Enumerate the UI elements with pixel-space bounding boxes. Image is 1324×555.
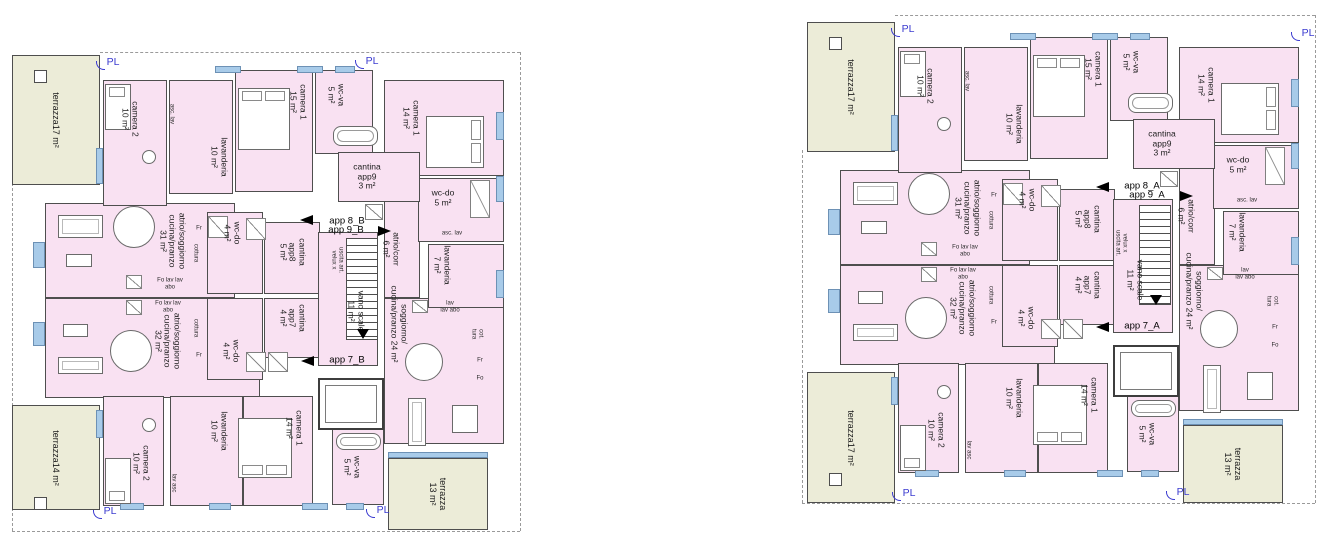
fixture-label-line: Fr [1272,325,1278,332]
bed-pillow [471,143,481,163]
fixture-crossed-box [470,180,490,218]
room-label-line: app9 [353,172,380,182]
bed-pillow [904,458,920,468]
room-label-line: 14 m² [401,100,411,135]
pl-marker-leader [355,60,364,69]
window [891,115,898,151]
table [1247,372,1273,400]
fixture-label-line: asc. lav [1237,198,1257,205]
fixture-label-line: lav asc [965,441,972,460]
room-label-line: 4 m² [1016,307,1026,330]
fixture-label: Fr [196,353,202,360]
room-label: lavanderia10 m² [209,411,228,450]
window [828,289,840,313]
terrace-label-line: terrazza [1233,448,1243,481]
fixture-label-line: cottura [192,244,199,262]
apartment-entrance-label: app 9_A [1129,191,1164,202]
pl-marker-label: PL [107,57,120,69]
room-label: lavanderia10 m² [1004,104,1023,143]
sofa [853,182,898,205]
room-label-line: cantina [1092,271,1102,298]
bed-pillow [904,54,920,64]
room-label-line: 6 m² [1176,199,1186,233]
room-label: wc-va5 m² [1137,422,1156,444]
pl-marker-label-line: PL [903,488,916,500]
dining-table [113,206,155,248]
window [96,410,103,438]
fixture-label: velux xuscita art. [1114,230,1127,256]
pl-marker-label-line: PL [377,505,390,517]
room-label-line: camera 2 [130,101,140,136]
pl-marker-leader [93,510,102,519]
window [1010,33,1036,40]
table [858,291,883,304]
bed-pillow [109,491,125,501]
window [96,148,103,184]
room-label-line: 14 m² [1079,377,1089,412]
room-label: soggiorno/cucina/pranzo 24 m² [389,285,408,362]
fixture-label-line: abo [157,284,183,291]
room-label-line: 4 m² [278,304,288,331]
room-label-line: wc-do [1027,189,1037,212]
room-label-line: 10 m² [209,137,219,176]
sofa [58,357,103,374]
property-boundary-line [895,15,1315,16]
fixture-crossed-box [268,352,288,372]
window [1291,237,1299,265]
fixture-label-line: lav abo [1235,274,1254,281]
room-label-line: 7 m² [1227,212,1237,251]
fixture-label-line: abo [952,251,978,258]
room-label: atrio/corr6 m² [1176,199,1195,233]
pl-marker-label-line: PL [1302,28,1315,40]
fixture-crossed-box [1265,147,1285,185]
room-label: cantinaapp74 m² [1073,271,1102,298]
fixture-label: Fo [476,376,483,383]
sofa [853,324,898,341]
room-label: wc-va5 m² [342,455,361,477]
room [965,363,1038,473]
fixture-label: Fr [477,358,483,365]
room-label-line: soggiorno/ [1194,252,1204,329]
bathtub-basin [337,130,374,142]
room-label: soggiorno/cucina/pranzo 24 m² [1184,252,1203,329]
bed [105,458,131,504]
room-label: camera 114 m² [1196,67,1215,102]
fixture-label: Fr [196,226,202,233]
apartment-entrance-arrow [301,356,314,366]
fixture-label-line: cottura [987,286,994,304]
room-label-line: 5 m² [1137,422,1147,444]
table [452,405,478,433]
room-label-line: 11 m² [346,291,356,332]
room-label-line: camera 2 [141,445,151,480]
window [1004,470,1026,477]
terrace-planter [829,473,842,486]
fixture-crossed-box [921,267,937,282]
apartment-entrance-label-line: app 9_B [328,226,363,237]
bed-pillow [242,91,262,101]
fixture-label: lavlav abo [440,300,459,313]
room-label-line: 5 m² [1227,165,1250,175]
pl-marker-label: PL [1177,487,1190,499]
bathtub [1128,93,1173,113]
room-label-line: cantina [297,238,307,265]
window [1097,470,1123,477]
window [209,503,231,510]
fixture-label-line: Fo lav lav [155,300,181,307]
room-label-line: wc-do [232,222,242,245]
room-label-line: vano scale [1135,260,1145,301]
room-label: vano scale11 m² [1125,260,1144,301]
fixture-label: cottura [192,319,199,337]
pl-marker-label-line: PL [902,24,915,36]
room-label-line: 14 m² [1196,67,1206,102]
window [215,66,241,73]
fixture-crossed-box [126,275,142,289]
window [33,322,45,346]
bed-pillow [1266,87,1276,107]
apartment-entrance-arrow [1096,182,1109,192]
fixture-label: asc. lav [442,231,462,238]
room-label-line: vano scale [356,291,366,332]
dining-table [1200,310,1238,348]
room-label-line: wc-do [231,340,241,363]
room-label: camera 210 m² [926,412,945,447]
room-label-line: lavanderia [1014,104,1024,143]
room-label: camera 114 m² [1079,377,1098,412]
window [1092,33,1118,40]
bathtub-basin [340,437,377,446]
table [63,324,88,337]
fixture-label: cottura [987,286,994,304]
property-boundary-line [12,531,520,532]
stair-direction-arrow [1150,295,1162,305]
apartment-entrance-label-line: app 7_B [329,356,364,367]
elevator-car [1120,352,1172,390]
room-label: wc-do4 m² [222,222,241,245]
apartment-entrance-label: app 7_A [1124,322,1159,333]
window [335,66,355,73]
room-label-line: app7 [287,304,297,331]
fixture-label-line: asc. lav [168,104,175,124]
desk-chair [142,418,156,432]
dining-table [405,343,443,381]
fixture-label: Fo [1271,343,1278,350]
room-label-line: app8 [287,238,297,265]
room-label-line: camera 2 [936,412,946,447]
room-label: wc-do5 m² [1227,155,1250,174]
window [1291,79,1299,107]
room-label-line: cucina/pranzo [962,179,972,235]
apartment-entrance-arrow [1180,191,1193,201]
fixture-label: Fo lav lavabo [950,267,976,280]
fixture-label-line: cottura [987,211,994,229]
room-label-line: 4 m² [1017,189,1027,212]
room-label-line: 10 m² [209,411,219,450]
room-label-line: cucina/pranzo 24 m² [389,285,399,362]
room-label-line: 10 m² [1004,104,1014,143]
bathtub [336,433,381,450]
room-label-line: camera 1 [1089,377,1099,412]
apartment-entrance-arrow [300,215,313,225]
room-label-line: 5 m² [1073,205,1083,232]
room-label-line: 4 m² [1073,271,1083,298]
bed-pillow [471,120,481,140]
room-label-line: cantina [1092,205,1102,232]
fixture-label-line: velux x [1121,230,1128,256]
room-label: atrio/soggiornocucina/pranzo31 m² [953,179,982,235]
pl-marker-label: PL [104,506,117,518]
bathtub-basin [1132,97,1169,109]
window [891,377,898,405]
fixture-label-line: Fr [991,320,997,327]
fixture-crossed-box [1041,319,1061,339]
apartment-entrance-label: app 7_B [329,356,364,367]
terrace-label: terrazza17 m² [51,92,61,148]
fixture-label-line: Fo lav lav [952,244,978,251]
room-label-line: lavanderia [219,137,229,176]
room-label-line: cucina/pranzo [162,313,172,369]
fixture-label: asc. lav [963,71,970,91]
room-label-line: wc-va [336,84,346,106]
terrace-label: terrazza13 m² [1223,448,1243,481]
terrace-label-line: terrazza14 m² [51,430,61,486]
bathtub [333,126,378,146]
apartment-entrance-label: app 9_B [328,226,363,237]
window [1130,33,1150,40]
bed [1221,83,1279,135]
window [120,503,144,510]
room-label-line: atrio/soggiorno [171,313,181,369]
fixture-crossed-box [1160,171,1178,187]
room-label-line: cucina/pranzo 24 m² [1184,252,1194,329]
room-label-line: app9 [1148,139,1175,149]
fixture-crossed-box [365,204,383,220]
bed [1033,55,1085,117]
fixture-crossed-box [1063,319,1083,339]
terrace-planter [34,497,47,510]
window [33,242,45,268]
fixture-label-line: asc. lav [442,231,462,238]
room-label-line: camera 1 [1206,67,1216,102]
room-label: lavanderia10 m² [1004,378,1023,417]
room-label-line: cantina [1148,130,1175,140]
room-label-line: atrio/soggiorno [177,212,187,268]
room-label: wc-do4 m² [221,340,240,363]
room [170,396,243,506]
terrace-label-line: terrazza17 m² [846,410,856,466]
pl-marker-label: PL [366,56,379,68]
desk-chair [937,117,951,131]
dining-table [908,173,950,215]
room-label-line: 11 m² [1125,260,1135,301]
room-label: wc-do4 m² [1016,307,1035,330]
bed-pillow [1266,110,1276,130]
room-label-line: 5 m² [432,198,455,208]
fixture-label-line: Fo lav lav [157,277,183,284]
terrace-label-line: terrazza17 m² [51,92,61,148]
room-label-line: 10 m² [120,101,130,136]
room-label-line: 32 m² [152,313,162,369]
window [1141,470,1159,477]
room-label: atrio/corr6 m² [381,232,400,266]
room-label-line: app8 [1082,205,1092,232]
window [1183,419,1283,425]
fixture-label-line: Fr [196,226,202,233]
room-label-line: cucina/pranzo [957,280,967,336]
room-label-line: 4 m² [222,222,232,245]
fixture-label: lav asc [965,441,972,460]
pl-marker-leader [1166,491,1175,500]
pl-marker-label-line: PL [104,506,117,518]
fixture-label-line: abo [950,274,976,281]
fixture-label: Fr [991,193,997,200]
sofa [408,398,426,446]
room-label: lavanderia7 m² [1227,212,1246,251]
bed-pillow [1037,58,1057,68]
pl-marker-label-line: PL [366,56,379,68]
apartment-entrance-arrow [1096,322,1109,332]
fixture-label: cot.tura [470,329,483,339]
fixture-label-line: lav asc [170,474,177,493]
pl-marker-leader [366,509,375,518]
room-label-line: 15 m² [1083,51,1093,86]
room-label-line: cantina [297,304,307,331]
room-label: camera 114 m² [284,410,303,445]
fixture-label-line: uscita art. [1114,230,1121,256]
sofa [1203,365,1221,413]
fixture-label: Fo lav lavabo [952,244,978,257]
room-label: lavanderia7 m² [432,245,451,284]
terrace-planter [829,37,842,50]
bed-pillow [266,465,287,475]
property-boundary-line [520,52,521,531]
room-label-line: camera 1 [294,410,304,445]
stair-direction-arrow [357,329,369,339]
table [861,221,887,234]
fixture-label-line: abo [155,307,181,314]
fixture-label: lav asc [170,474,177,493]
room-label: cantinaapp74 m² [278,304,307,331]
window [828,209,840,235]
window [496,270,504,298]
room-label-line: 31 m² [953,179,963,235]
room-label: camera 210 m² [120,101,139,136]
room-label-line: wc-va [352,455,362,477]
terrace-label: terrazza14 m² [51,430,61,486]
fixture-label-line: velux x [330,247,337,273]
terrace-label: terrazza13 m² [428,478,448,511]
room-label: camera 115 m² [1083,51,1102,86]
pl-marker-label: PL [902,24,915,36]
desk-chair [937,385,951,399]
room-label-line: cantina [353,163,380,173]
fixture-label: Fr [991,320,997,327]
window [302,503,328,510]
room-label: cantinaapp93 m² [353,163,380,192]
room-label-line: camera 2 [925,68,935,103]
room-label: camera 114 m² [401,100,420,135]
fixture-crossed-box [1207,267,1223,280]
elevator-shaft [1113,345,1179,397]
room-label: cantinaapp85 m² [1073,205,1102,232]
fixture-label-line: Fo lav lav [950,267,976,274]
property-boundary-line [802,150,803,503]
fixture-label: uscita art.velux x [330,247,343,273]
room-label-line: 5 m² [326,84,336,106]
fixture-crossed-box [1041,185,1061,207]
bathtub-basin [1135,404,1172,413]
fixture-label-line: Fr [991,193,997,200]
fixture-label-line: lav [1235,267,1254,274]
room-label: atrio/soggiornocucina/pranzo32 m² [152,313,181,369]
window [1291,143,1299,169]
apartment-entrance-arrow [378,226,391,236]
room-label-line: lavanderia [1014,378,1024,417]
fixture-label-line: lav abo [440,307,459,314]
bed-pillow [265,91,285,101]
room-label-line: camera 1 [1093,51,1103,86]
fixture-crossed-box [412,300,428,313]
fixture-label: asc. lav [1237,198,1257,205]
bed-pillow [242,465,263,475]
dining-table [905,297,947,339]
room-label-line: 15 m² [288,84,298,119]
room-label-line: atrio/soggiorno [972,179,982,235]
room-label-line: 4 m² [221,340,231,363]
room-label-line: atrio/soggiorno [966,280,976,336]
fixture-label: Fr [1272,325,1278,332]
bed [238,88,290,150]
room-label-line: 31 m² [158,212,168,268]
room-label-line: 5 m² [342,455,352,477]
room-label: wc-do4 m² [1017,189,1036,212]
fixture-label-line: tura [470,329,477,339]
pl-marker-label: PL [377,505,390,517]
room-label-line: camera 1 [298,84,308,119]
fixture-label-line: cot. [477,329,484,339]
fixture-label-line: uscita art. [337,247,344,273]
room-label-line: wc-do [1227,155,1250,165]
fixture-crossed-box [246,218,266,240]
fixture-label-line: Fo [1271,343,1278,350]
room-label-line: 10 m² [131,445,141,480]
room-label-line: lavanderia [442,245,452,284]
window [496,112,504,140]
fixture-label-line: asc. lav [963,71,970,91]
pl-marker-leader [1291,32,1300,41]
room-label-line: 10 m² [915,68,925,103]
room-label-line: 7 m² [432,245,442,284]
fixture-label: cot.tura [1265,296,1278,306]
property-boundary-line [802,503,1315,504]
room-label: wc-do5 m² [432,188,455,207]
terrace-label-line: 13 m² [1223,448,1233,481]
room-label: camera 210 m² [131,445,150,480]
pl-marker-label-line: PL [1177,487,1190,499]
fixture-label-line: lav [440,300,459,307]
fixture-crossed-box [126,300,142,315]
sofa [58,215,103,238]
bed-pillow [1060,58,1080,68]
bed [900,425,926,471]
apartment-entrance-label-line: app 9_A [1129,191,1164,202]
room-label-line: app7 [1082,271,1092,298]
table [66,254,92,267]
bed-pillow [109,87,125,97]
room-label-line: 5 m² [278,238,288,265]
